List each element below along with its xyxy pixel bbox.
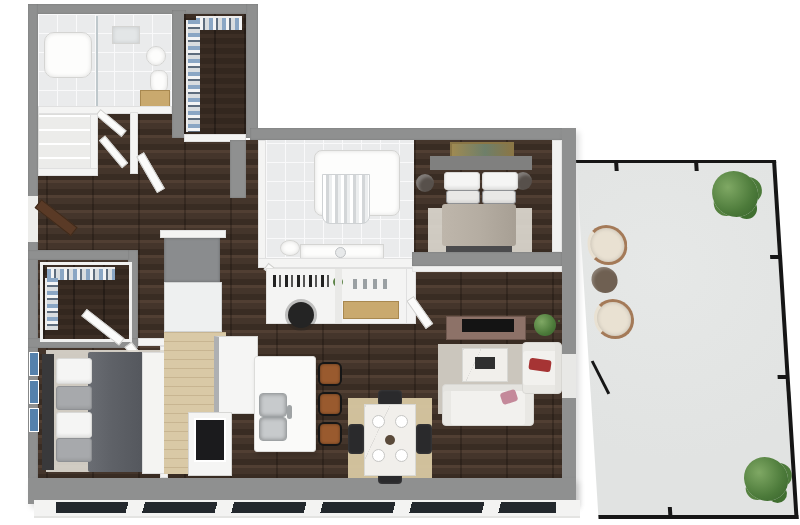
- patio-door-gap: [562, 354, 576, 398]
- kitchen-back-wall: [160, 230, 226, 238]
- shower-curtain: [322, 174, 370, 224]
- bedroom1-headboard: [430, 156, 532, 170]
- dining-table: [364, 404, 416, 476]
- island-faucet: [287, 405, 292, 419]
- hanging-clothes-rail-top: [196, 16, 242, 30]
- hall-wall-b: [130, 112, 138, 174]
- place-setting-4: [395, 449, 408, 462]
- kitchen-island: [254, 356, 316, 452]
- accent-chair-red-pillow: [528, 358, 551, 373]
- room-patio: [576, 160, 799, 519]
- room-walk-in-closet-2: [40, 262, 132, 342]
- bathroom-sink: [146, 46, 166, 66]
- hall-wall-c: [38, 168, 98, 176]
- place-setting-1: [372, 415, 385, 428]
- bedroom1-pillow-1: [444, 172, 480, 190]
- floor-plan-render: [0, 0, 800, 525]
- exterior-wall-top: [28, 4, 258, 14]
- bedroom1-pillow-4: [482, 190, 516, 204]
- console-cabinet: [343, 301, 399, 319]
- room-primary-bathroom: [38, 14, 172, 110]
- bar-stool-3: [318, 422, 342, 446]
- patio-side-table: [591, 267, 619, 293]
- hanging-clothes-rail-left: [186, 20, 200, 132]
- refrigerator-top: [164, 238, 220, 282]
- railing-post-bottom-1: [668, 507, 673, 517]
- table-centerpiece: [385, 435, 395, 445]
- accent-chair: [522, 342, 562, 394]
- bar-stool-1: [318, 362, 342, 386]
- room-walk-in-closet-1: [184, 14, 246, 136]
- room-bedroom-1: [416, 140, 562, 252]
- dining-chair-left: [348, 424, 364, 454]
- bedroom2-pillow-1: [56, 358, 92, 384]
- patio-chair-2: [593, 299, 636, 339]
- bedroom2-pillow-2: [56, 386, 92, 410]
- coffee-table: [462, 348, 508, 382]
- bedroom1-foot-bench: [446, 246, 512, 252]
- exterior-wall-right: [562, 128, 576, 504]
- room-living: [436, 312, 562, 430]
- hall-wall-a: [90, 114, 98, 172]
- nook-divider-wall: [335, 269, 342, 323]
- railing-post-top-1: [614, 161, 619, 171]
- place-setting-2: [395, 415, 408, 428]
- bedroom2-bed-duvet: [88, 352, 144, 472]
- sofa: [442, 384, 534, 426]
- railing-post-right-2: [778, 375, 788, 379]
- bedroom2-bed-sheet: [142, 352, 166, 474]
- railing-post-top-2: [694, 161, 699, 171]
- office-chair: [288, 302, 314, 328]
- bedroom2-wall-art-2: [29, 380, 39, 404]
- closet2-wall-top: [28, 250, 138, 260]
- hall-wall-stub: [230, 140, 246, 198]
- patio-plant-bottom: [743, 457, 790, 501]
- closet2-clothes-left: [45, 278, 58, 330]
- linen-closet: [38, 114, 92, 170]
- window-glass-panes: [56, 502, 556, 513]
- nook-wall-right: [406, 268, 416, 324]
- island-sink-2: [259, 417, 287, 441]
- entry-door-gap: [28, 196, 38, 242]
- bedroom2-pillow-3: [56, 412, 92, 438]
- bedroom2-pillow-4: [56, 438, 92, 462]
- kitchen-counter-upper: [214, 336, 258, 414]
- shower-glass-panel: [96, 16, 98, 108]
- bedroom2-headboard: [42, 354, 54, 470]
- patio-door-leaf: [591, 360, 610, 394]
- bedroom2-wall-art-3: [29, 408, 39, 432]
- tv-screen: [462, 319, 514, 332]
- patio-chair-1: [586, 225, 629, 265]
- range-oven: [194, 418, 226, 462]
- living-room-plant: [534, 314, 556, 336]
- desk-shelf-books: [273, 275, 331, 287]
- bathroom2-vanity: [300, 244, 384, 259]
- patio-plant-top: [711, 171, 760, 217]
- bedroom1-duvet: [442, 204, 516, 246]
- console-decor: [353, 279, 387, 289]
- refrigerator-front: [164, 282, 222, 332]
- exterior-wall-main-top: [250, 128, 572, 140]
- railing-post-right-1: [770, 255, 780, 259]
- island-sink-1: [259, 393, 287, 417]
- place-setting-3: [372, 449, 385, 462]
- bedroom1-pillow-3: [446, 190, 480, 204]
- bathtub: [44, 32, 92, 78]
- room-bedroom-2: [38, 346, 160, 478]
- towel-rack: [112, 26, 140, 44]
- room-bathroom-2: [266, 140, 414, 258]
- bathroom2-wall-left: [258, 140, 266, 260]
- sofa-pink-pillow: [500, 389, 519, 405]
- exterior-wall-tower-right: [246, 4, 258, 138]
- bedroom1-wall-face: [412, 266, 562, 272]
- bedroom1-wall-bottom: [412, 252, 562, 266]
- bar-stool-2: [318, 392, 342, 416]
- bedroom2-wall-art-1: [29, 352, 39, 376]
- coffee-table-tray: [475, 357, 495, 369]
- room-dining: [348, 390, 432, 484]
- bathroom2-vanity-sink: [335, 247, 346, 258]
- bathroom2-toilet: [280, 240, 300, 256]
- nightstand-left: [416, 174, 434, 192]
- bathroom2-wall-bottom: [258, 258, 414, 268]
- dining-chair-right: [416, 424, 432, 454]
- bedroom1-pillow-2: [482, 172, 518, 190]
